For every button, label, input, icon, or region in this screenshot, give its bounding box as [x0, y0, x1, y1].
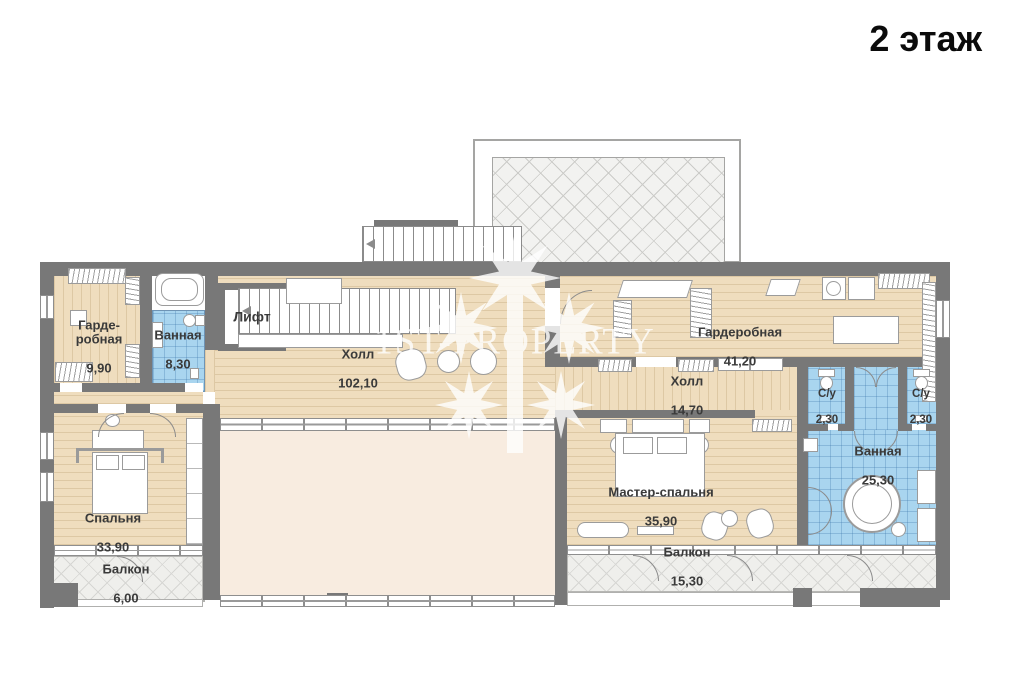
side-table	[721, 510, 738, 527]
closet-shelf	[125, 277, 140, 305]
wall-segment	[838, 424, 854, 431]
window	[40, 432, 54, 460]
door-opening	[150, 404, 176, 413]
pouf	[470, 348, 497, 375]
closet-shelf	[613, 300, 632, 338]
wall-segment	[140, 276, 152, 392]
closet-shelf	[617, 280, 693, 298]
window-band-void-bottom	[220, 595, 555, 607]
room-label-hall-main: Холл 102,10	[338, 333, 378, 406]
room-label-wc-right: С/у 2,30	[910, 375, 932, 439]
pillow	[623, 437, 653, 454]
room-label-wc-left: С/у 2,30	[816, 375, 838, 439]
room-label-balcony-left: Балкон 6,00	[103, 548, 150, 621]
closet-column	[186, 418, 203, 545]
wall-segment	[845, 367, 854, 424]
wall-post	[40, 583, 78, 607]
floor-plan-page: 2 этаж	[0, 0, 1027, 684]
washing-machine-drum	[826, 281, 841, 296]
wall-segment	[205, 276, 218, 350]
window-band-master	[567, 545, 936, 555]
stairs-upper-flight	[362, 226, 522, 262]
closet-shelf	[125, 344, 140, 378]
closet-shelf	[765, 279, 801, 296]
pillow	[657, 437, 687, 454]
wall-segment	[203, 404, 220, 600]
page-title: 2 этаж	[869, 18, 982, 60]
closet-shelf	[598, 359, 632, 372]
pillow	[122, 455, 145, 470]
closet-shelf	[752, 419, 792, 432]
wall-segment	[797, 367, 808, 545]
bed-canopy-post	[76, 448, 79, 463]
wall-segment	[555, 418, 567, 605]
stairs-landing	[286, 278, 342, 304]
stool	[891, 522, 906, 537]
closet-shelf	[600, 419, 627, 433]
room-label-wardrobe-right: Гардеробная 41,20	[698, 311, 782, 384]
stairs-lower-flight	[238, 288, 456, 334]
wardrobe-island	[833, 316, 899, 344]
pouf	[437, 350, 460, 373]
window	[40, 295, 54, 319]
window-band-void-top	[220, 418, 555, 431]
room-label-bathroom-small: Ванная 8,30	[154, 314, 201, 387]
door-opening	[545, 288, 560, 326]
room-label-bathroom-master: Ванная 25,30	[854, 430, 901, 503]
roof-hatch-area	[492, 157, 725, 263]
bathtub-inner	[161, 278, 198, 301]
wall-segment	[555, 410, 755, 418]
closet-shelf	[68, 268, 126, 284]
sink	[803, 438, 818, 452]
dryer	[848, 277, 875, 300]
wall-segment	[54, 404, 203, 413]
pillow	[96, 455, 119, 470]
room-label-wardrobe-left: Гарде- робная 9,90	[76, 303, 123, 390]
stairs-direction-arrow	[366, 239, 375, 249]
vanity-unit	[917, 508, 936, 542]
bed-canopy-frame	[76, 448, 164, 451]
room-label-elevator: Лифт	[233, 293, 270, 340]
door-opening	[98, 404, 126, 413]
void-over-living-room	[220, 431, 555, 597]
wall-post	[793, 588, 812, 607]
wall-post	[860, 588, 940, 607]
window	[936, 300, 950, 338]
room-label-balcony-right: Балкон 15,30	[664, 531, 711, 604]
bed-canopy-post	[161, 448, 164, 463]
window	[40, 472, 54, 502]
room-label-hall-small: Холл 14,70	[671, 360, 704, 433]
floor-corridor-left	[54, 392, 203, 404]
wall-segment	[898, 367, 907, 424]
vanity-unit	[917, 470, 936, 504]
